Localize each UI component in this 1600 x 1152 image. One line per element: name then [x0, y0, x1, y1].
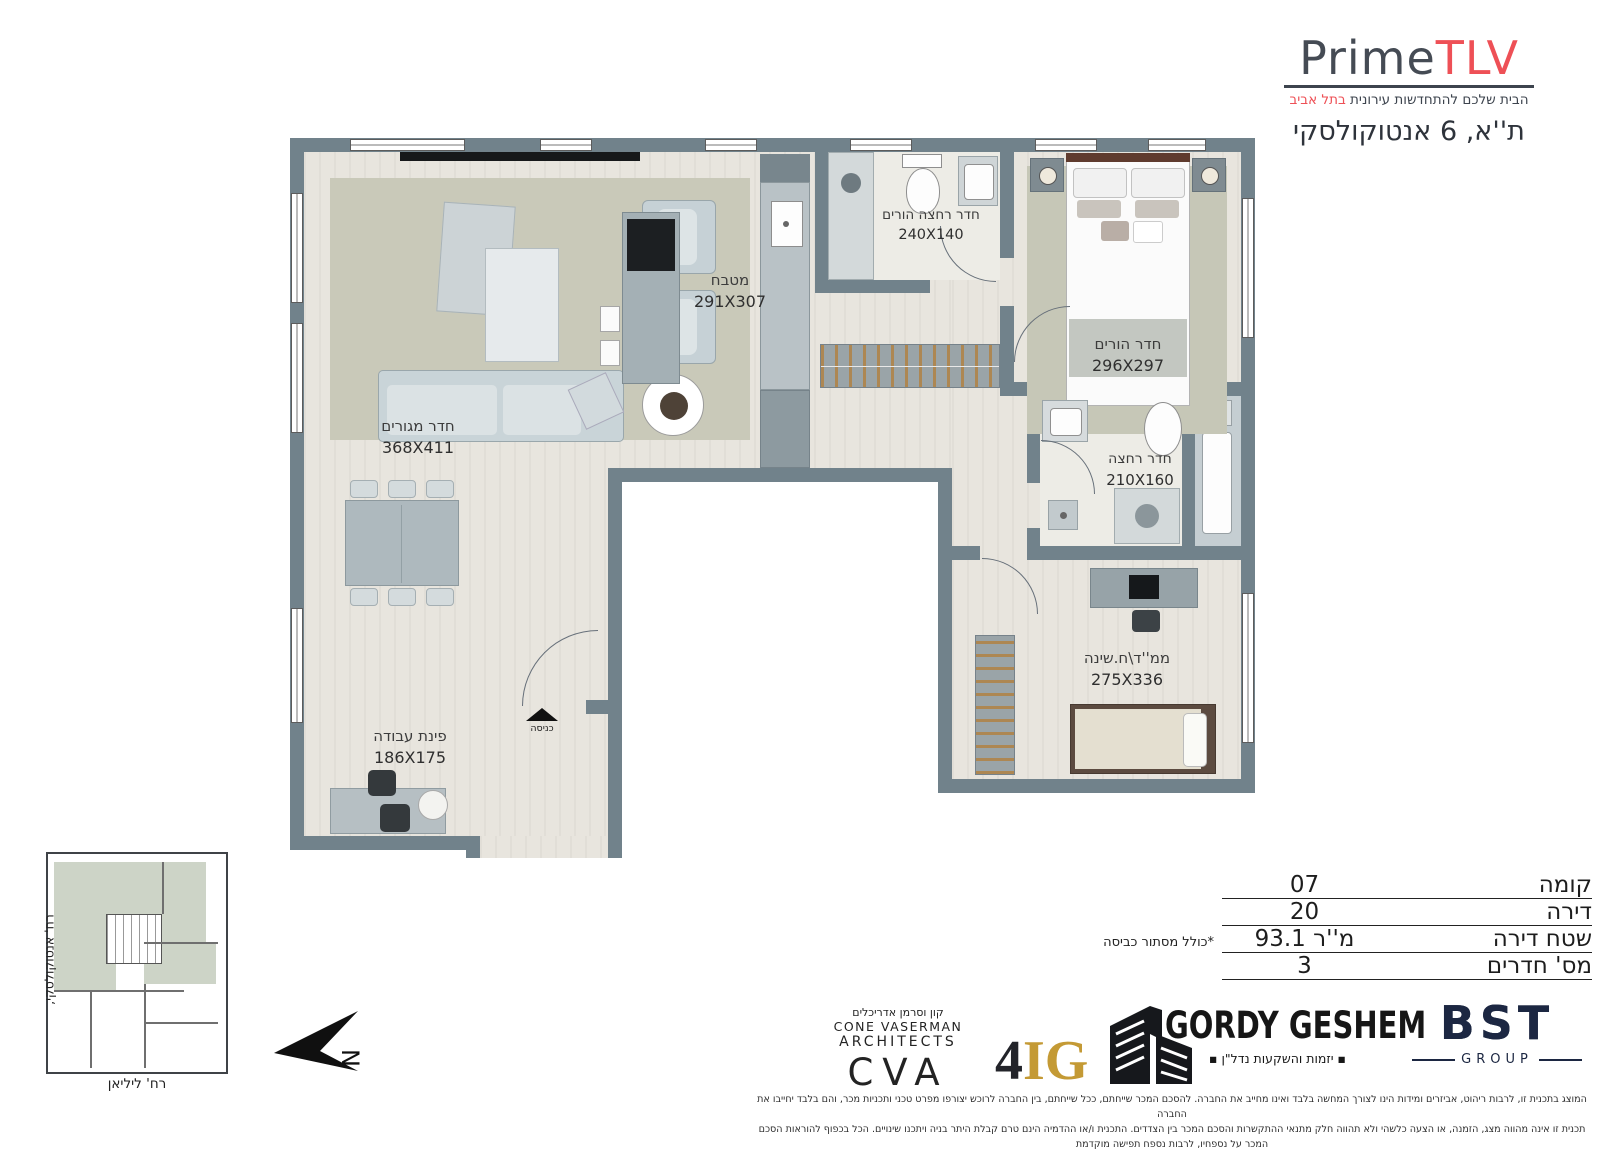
- row-value: 93.1 מ''ר: [1222, 926, 1387, 953]
- nightstand: [1192, 158, 1226, 192]
- refrigerator: [760, 390, 810, 468]
- window: [705, 139, 757, 151]
- key-plan-street-label: רח' ליליאן: [52, 1076, 222, 1092]
- nightstand: [1030, 158, 1064, 192]
- room-name: חדר מגורים: [381, 417, 454, 435]
- cva-initials: CVA: [813, 1051, 983, 1094]
- window: [1035, 139, 1097, 151]
- entrance-label: כניסה: [492, 723, 592, 734]
- window: [291, 193, 303, 303]
- room-label-kitchen: מטבח291X307: [680, 270, 780, 313]
- dining-chair: [350, 480, 378, 498]
- bathroom-vanity: [958, 156, 998, 206]
- office-chair: [380, 804, 410, 832]
- bedroom-closet: [975, 635, 1015, 775]
- key-plan-side-street-label: רח' אנטוקולסקי,: [42, 865, 57, 1055]
- room-name: ממ''ד\ח.שינה: [1084, 649, 1170, 667]
- cva-architects-logo: קון וסרמן אדריכלים CONE VASERMAN ARCHITE…: [813, 1006, 983, 1094]
- brand-tagline: הבית שלכם להתחדשות עירונית בתל אביב: [1280, 92, 1538, 108]
- toilet-bowl: [1144, 402, 1182, 456]
- 4ig-number: 4: [995, 1030, 1023, 1092]
- wall: [815, 280, 930, 293]
- wall: [608, 482, 622, 858]
- office-chair: [368, 770, 396, 796]
- room-name: פינת עבודה: [373, 727, 447, 745]
- wall: [290, 836, 480, 850]
- key-plan-line: [54, 990, 184, 992]
- gordy-wordmark: GORDY GESHEM: [1165, 1003, 1390, 1047]
- bar-stool: [600, 340, 620, 366]
- cva-line1: CONE VASERMAN: [813, 1019, 983, 1034]
- cva-line2: ARCHITECTS: [813, 1034, 983, 1050]
- room-label-bathroom: חדר רחצה210X160: [1085, 450, 1195, 491]
- project-address: ת''א, 6 אנטוקולסקי: [1280, 116, 1538, 147]
- brand-tagline-main: הבית שלכם להתחדשות עירונית: [1346, 92, 1529, 108]
- kitchen-island: [622, 212, 680, 384]
- bst-rule-left: [1412, 1059, 1455, 1061]
- row-value: 3: [1222, 953, 1387, 980]
- coffee-table: [485, 248, 559, 362]
- table-note: *כולל מסתור כביסה: [1103, 935, 1214, 953]
- key-plan-line: [162, 862, 164, 914]
- table-row: דירה20: [1032, 899, 1592, 926]
- toilet: [902, 154, 942, 168]
- window: [850, 139, 912, 151]
- window: [291, 608, 303, 723]
- legal-line-1: המוצג בתכנית זו, לרבות ריהוט, אביזרים ומ…: [748, 1093, 1596, 1123]
- window: [540, 139, 592, 151]
- bar-stool: [600, 306, 620, 332]
- room-dims: 186X175: [374, 748, 446, 767]
- table-row: קומה07: [1032, 872, 1592, 899]
- room-label-safe-room: ממ''ד\ח.שינה275X336: [1072, 648, 1182, 691]
- dining-chair: [426, 588, 454, 606]
- room-dims: 368X411: [382, 438, 454, 457]
- entrance-arrow-icon: [526, 708, 558, 721]
- row-label: שטח דירה: [1387, 926, 1592, 953]
- hallway-closet: [820, 344, 1000, 388]
- brand-logo-tlv: TLV: [1436, 31, 1519, 85]
- dining-chair: [388, 588, 416, 606]
- wall: [608, 468, 952, 482]
- shower: [1114, 488, 1180, 544]
- apartment-info-table: קומה07 דירה20 שטח דירה93.1 מ''ר*כולל מסת…: [1032, 872, 1592, 980]
- floor-plan: כניסה מטבח291X307 חדר רחצה הורים240X140 …: [290, 138, 1255, 860]
- wall: [952, 546, 980, 560]
- wall: [938, 779, 1255, 793]
- key-plan-line: [144, 942, 218, 944]
- window: [1242, 198, 1254, 338]
- table-row: שטח דירה93.1 מ''ר*כולל מסתור כביסה: [1032, 926, 1592, 953]
- room-dims: 291X307: [694, 292, 766, 311]
- window: [350, 139, 465, 151]
- room-dims: 296X297: [1092, 356, 1164, 375]
- legal-disclaimer: המוצג בתכנית זו, לרבות ריהוט, אביזרים ומ…: [748, 1093, 1596, 1152]
- window: [1148, 139, 1206, 151]
- bst-group-line: GROUP: [1412, 1052, 1582, 1067]
- bathroom-vanity: [1042, 400, 1088, 442]
- north-letter: N: [336, 1049, 364, 1067]
- table-row: מס' חדרים3: [1032, 953, 1592, 980]
- bst-wordmark: BST: [1412, 1000, 1582, 1046]
- bst-group-text: GROUP: [1461, 1052, 1533, 1067]
- wall: [466, 836, 480, 858]
- single-bed: [1070, 704, 1216, 774]
- room-dims: 275X336: [1091, 670, 1163, 689]
- room-label-living-room: חדר מגורים368X411: [360, 416, 476, 459]
- window: [1242, 593, 1254, 743]
- brand-logo: PrimeTLV: [1280, 34, 1538, 82]
- window: [291, 323, 303, 433]
- desk-chair: [1132, 610, 1160, 632]
- bst-rule-right: [1539, 1059, 1582, 1061]
- key-plan-line: [144, 1022, 218, 1024]
- wall: [1027, 546, 1255, 560]
- row-label: קומה: [1387, 872, 1592, 899]
- laundry-condenser: [1202, 432, 1232, 534]
- dining-chair: [388, 480, 416, 498]
- brand-divider: [1284, 85, 1534, 88]
- legal-line-2: תכנית זו אינה מהווה מצג, הזמנה, או הצעה …: [748, 1123, 1596, 1152]
- gordy-subtitle: ▪ יזמות והשקעות נדל"ן ▪: [1165, 1051, 1390, 1066]
- key-plan: [46, 852, 228, 1074]
- key-plan-line: [90, 990, 92, 1068]
- kitchen-cabinet: [760, 154, 810, 182]
- row-label: מס' חדרים: [1387, 953, 1592, 980]
- row-value: 20: [1222, 899, 1387, 926]
- row-value: 07: [1222, 872, 1387, 899]
- dining-table: [345, 500, 459, 586]
- wall: [815, 152, 828, 293]
- room-label-work-corner: פינת עבודה186X175: [350, 726, 470, 769]
- row-label: דירה: [1387, 899, 1592, 926]
- room-name: מטבח: [711, 271, 749, 289]
- room-name: חדר רחצה הורים: [882, 207, 980, 223]
- north-arrow-icon: N: [270, 995, 366, 1081]
- room-label-parents-bath: חדר רחצה הורים240X140: [858, 206, 1004, 245]
- room-name: חדר הורים: [1095, 335, 1162, 353]
- guest-chair: [418, 790, 448, 820]
- desk: [1090, 568, 1198, 608]
- bst-group-logo: BST GROUP: [1412, 1000, 1582, 1067]
- room-label-master-bedroom: חדר הורים296X297: [1078, 334, 1178, 377]
- key-plan-stair-core: [106, 914, 162, 964]
- bath-sink: [1048, 500, 1078, 530]
- room-dims: 240X140: [898, 227, 963, 243]
- floor-entry-vestibule: [480, 836, 608, 858]
- 4ig-letters: IG: [1023, 1030, 1088, 1092]
- dining-chair: [350, 588, 378, 606]
- brand-tagline-accent: בתל אביב: [1289, 92, 1345, 108]
- dining-chair: [426, 480, 454, 498]
- room-dims: 210X160: [1106, 471, 1174, 489]
- brand-header: PrimeTLV הבית שלכם להתחדשות עירונית בתל …: [1280, 34, 1538, 147]
- wall: [938, 482, 952, 793]
- 4ig-wordmark: 4IG: [995, 1036, 1088, 1086]
- cva-hebrew: קון וסרמן אדריכלים: [813, 1006, 983, 1019]
- tv: [400, 152, 640, 161]
- key-plan-line: [144, 984, 146, 1068]
- brand-logo-prime: Prime: [1299, 31, 1436, 85]
- room-name: חדר רחצה: [1108, 451, 1172, 467]
- gordy-geshem-logo: GORDY GESHEM ▪ יזמות והשקעות נדל"ן ▪: [1165, 1008, 1390, 1066]
